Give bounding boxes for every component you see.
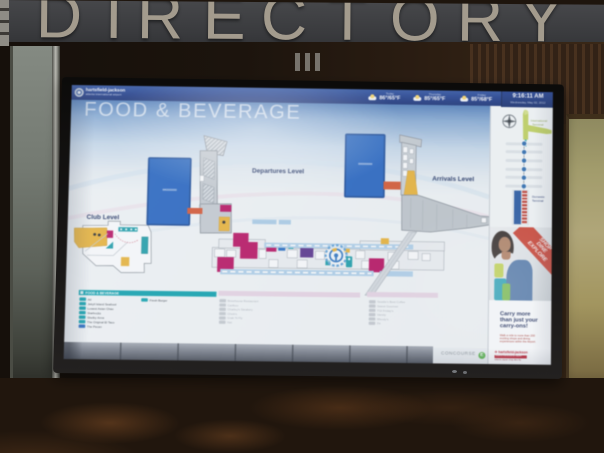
svg-text:Fresh Burger: Fresh Burger [150, 298, 168, 302]
svg-text:The Pecan: The Pecan [87, 324, 102, 328]
svg-text:Arrivals Level: Arrivals Level [432, 176, 474, 184]
svg-text:Departures Level: Departures Level [252, 168, 304, 176]
svg-text:Atl: Atl [88, 297, 92, 301]
svg-text:Za: Za [377, 321, 381, 325]
svg-text:Club Level: Club Level [86, 214, 119, 221]
svg-text:Terminal: Terminal [532, 123, 544, 127]
svg-text:FOOD & BEVERAGE: FOOD & BEVERAGE [85, 291, 120, 295]
svg-text:Nat: Nat [227, 320, 232, 324]
